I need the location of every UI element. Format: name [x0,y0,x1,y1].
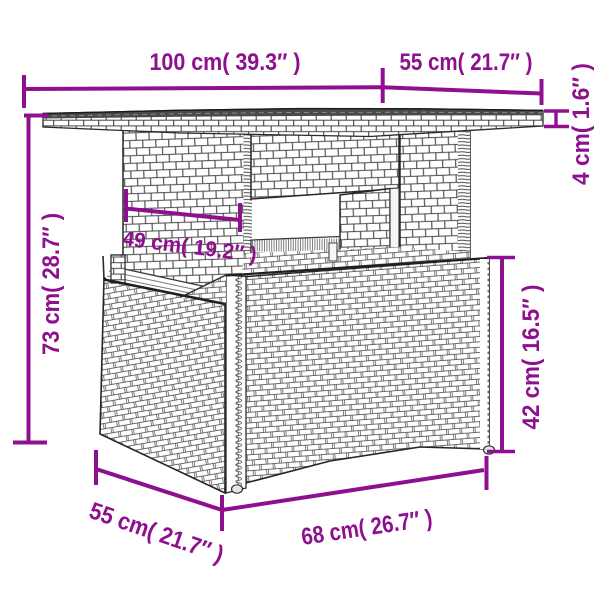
svg-text:100 cm( 39.3″ ): 100 cm( 39.3″ ) [150,49,301,76]
svg-text:73 cm( 28.7″ ): 73 cm( 28.7″ ) [38,213,65,355]
svg-text:42 cm( 16.5″ ): 42 cm( 16.5″ ) [518,285,545,430]
svg-text:55 cm( 21.7″ ): 55 cm( 21.7″ ) [400,49,533,76]
svg-text:4 cm( 1.6″ ): 4 cm( 1.6″ ) [568,63,595,185]
